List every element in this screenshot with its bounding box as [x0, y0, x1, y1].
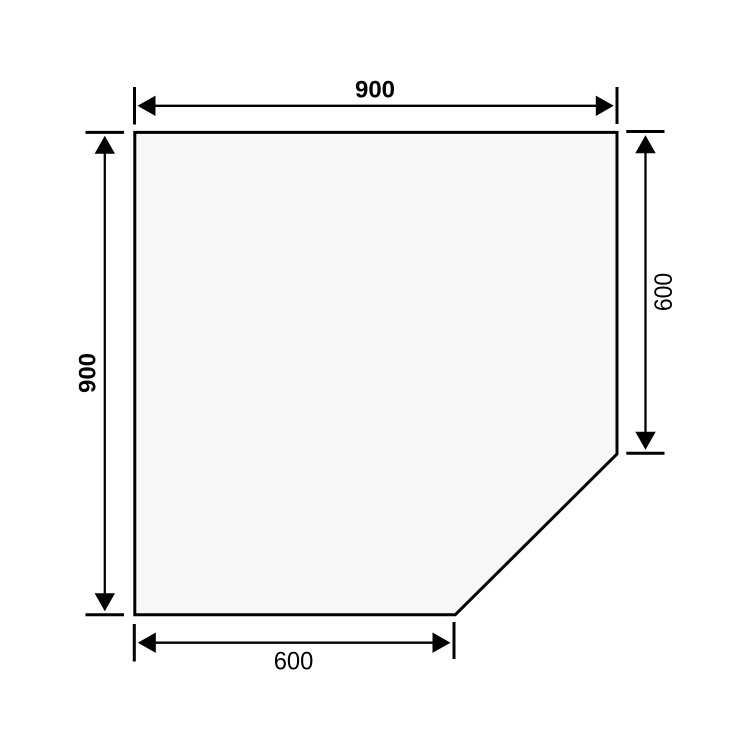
- svg-text:600: 600: [650, 273, 678, 311]
- svg-text:900: 900: [355, 77, 395, 104]
- svg-text:600: 600: [274, 648, 314, 676]
- svg-text:900: 900: [75, 353, 102, 393]
